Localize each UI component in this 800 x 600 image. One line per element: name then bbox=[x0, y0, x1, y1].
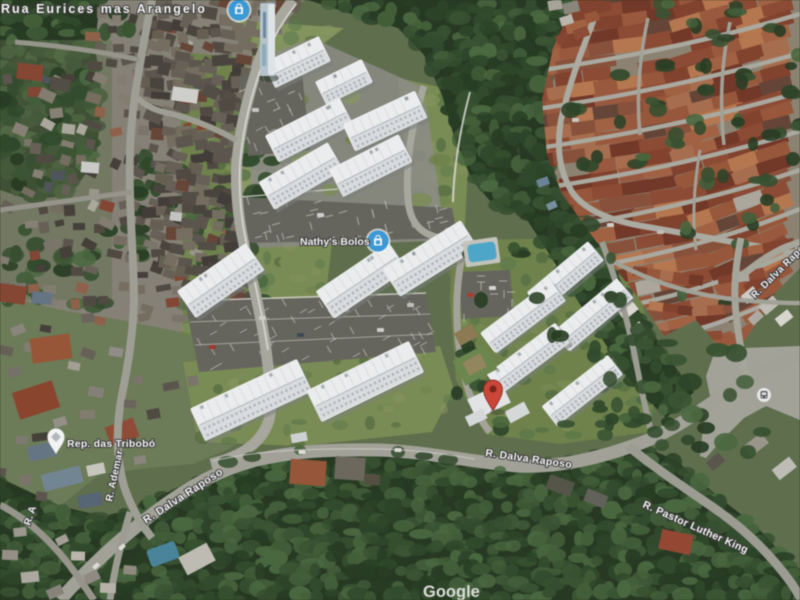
svg-text:Google: Google bbox=[423, 583, 480, 600]
svg-text:Nathy's Bolos: Nathy's Bolos bbox=[300, 236, 370, 248]
svg-text:Rep. das Tribobó: Rep. das Tribobó bbox=[67, 438, 155, 450]
svg-text:Rua Eurices mas Arangelo: Rua Eurices mas Arangelo bbox=[1, 2, 207, 16]
